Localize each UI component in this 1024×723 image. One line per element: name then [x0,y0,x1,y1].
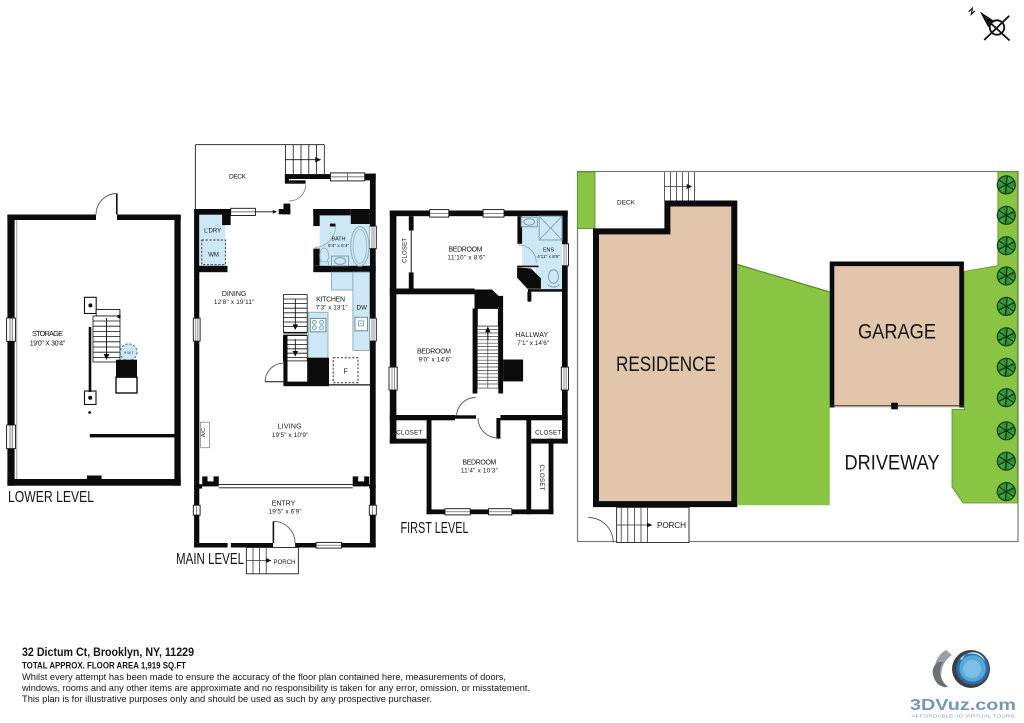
svg-text:DW: DW [357,305,367,312]
svg-text:CLOSET: CLOSET [402,238,408,263]
svg-text:12'8" x 19'11": 12'8" x 19'11" [214,299,255,306]
svg-text:WM: WM [208,253,219,259]
svg-text:GARAGE: GARAGE [858,320,936,344]
svg-text:PORCH: PORCH [657,521,686,530]
svg-text:This plan is for illustrative: This plan is for illustrative purposes o… [22,694,432,704]
svg-text:DECK: DECK [229,174,247,181]
svg-text:9'0" x 14'6": 9'0" x 14'6" [419,357,452,364]
svg-text:HALLWAY: HALLWAY [515,332,548,339]
svg-text:4'11" x 8'6": 4'11" x 8'6" [537,254,560,259]
svg-text:DRIVEWAY: DRIVEWAY [845,451,940,475]
svg-text:MAIN LEVEL: MAIN LEVEL [176,551,244,568]
svg-text:11'10" x 8'6": 11'10" x 8'6" [448,255,486,262]
svg-text:PORCH: PORCH [274,559,296,566]
svg-text:19'5" x 6'9": 19'5" x 6'9" [269,509,302,516]
svg-text:19'0" X 30'4": 19'0" X 30'4" [30,341,66,348]
svg-text:ENTRY: ENTRY [272,501,296,508]
svg-text:CLOSET: CLOSET [538,465,544,491]
svg-text:19'5" x 10'9": 19'5" x 10'9" [272,432,309,439]
svg-text:Whilst every attempt has been: Whilst every attempt has been made to en… [22,672,506,682]
svg-text:CLOSET: CLOSET [535,430,561,437]
svg-text:LOWER LEVEL: LOWER LEVEL [8,489,94,506]
svg-text:KITCHEN: KITCHEN [316,297,345,304]
svg-text:DECK: DECK [617,200,636,207]
svg-text:H.W.T: H.W.T [124,351,135,355]
svg-text:6'4" x 6'4": 6'4" x 6'4" [328,243,349,249]
svg-text:BEDROOM: BEDROOM [462,460,496,467]
svg-text:CLOSET: CLOSET [396,430,422,437]
svg-text:RESIDENCE: RESIDENCE [616,352,716,376]
svg-text:F: F [343,369,347,376]
svg-text:LIVING: LIVING [278,424,302,431]
svg-text:7'3" x 13'1": 7'3" x 13'1" [316,304,348,311]
svg-text:11'4" x 10'3": 11'4" x 10'3" [461,468,498,475]
svg-text:A/C: A/C [201,428,207,437]
svg-text:BEDROOM: BEDROOM [417,349,451,356]
svg-text:7'1" x 14'6": 7'1" x 14'6" [517,340,549,347]
svg-text:ENS: ENS [543,248,554,254]
svg-text:L'DRY: L'DRY [204,229,221,235]
svg-text:FIRST LEVEL: FIRST LEVEL [401,520,469,537]
svg-text:32 Dictum Ct, Brooklyn, NY, 11: 32 Dictum Ct, Brooklyn, NY, 11229 [22,646,195,659]
svg-text:STORAGE: STORAGE [32,329,63,338]
svg-text:windows, rooms and any other i: windows, rooms and any other items are a… [21,683,530,693]
svg-text:3DVuz.com: 3DVuz.com [910,697,1016,714]
svg-text:BEDROOM: BEDROOM [449,247,483,254]
svg-text:DINING: DINING [222,291,247,298]
svg-text:TOTAL APPROX. FLOOR AREA 1,919: TOTAL APPROX. FLOOR AREA 1,919 SQ.FT [22,661,187,671]
svg-text:AFFORDABLE 3D VIRTUAL TOURS: AFFORDABLE 3D VIRTUAL TOURS [912,714,1015,719]
svg-text:BATH: BATH [332,237,346,243]
